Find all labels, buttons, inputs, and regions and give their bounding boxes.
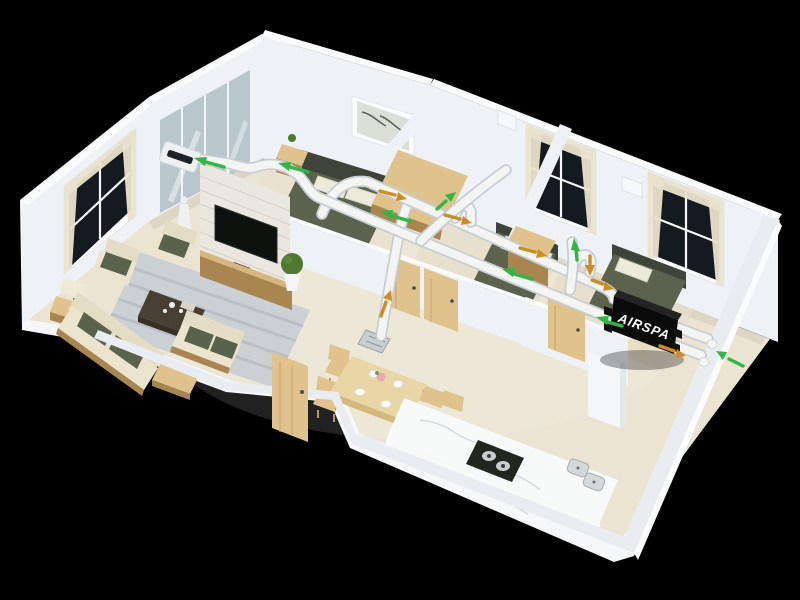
apartment-cutaway-scene: AIRSPA	[0, 0, 800, 600]
floorplan-render: AIRSPA	[0, 0, 800, 600]
exhaust-wall-vent	[699, 358, 709, 367]
door-handle	[300, 390, 304, 394]
door-handle	[412, 286, 416, 290]
intake-wall-vent	[707, 340, 717, 349]
entry-door	[272, 352, 308, 442]
